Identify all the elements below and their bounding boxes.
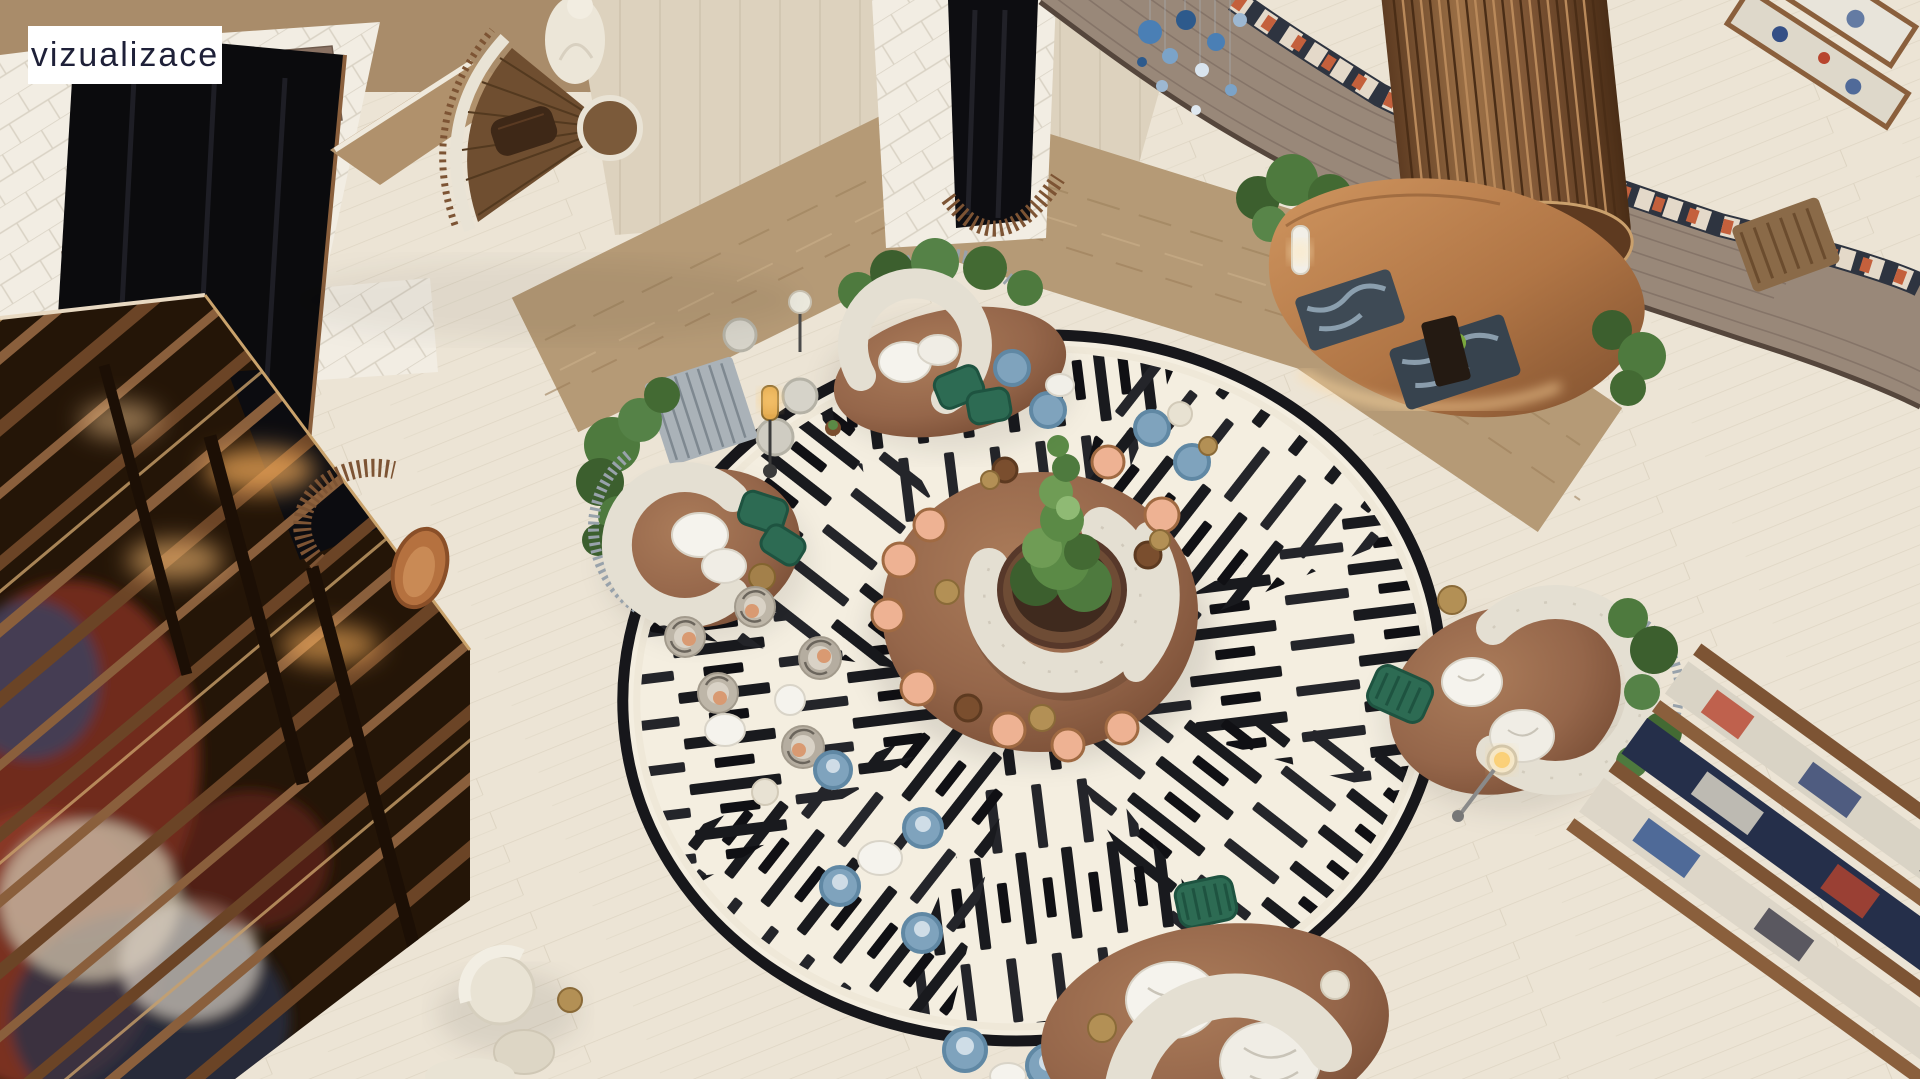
marble-table xyxy=(702,549,746,583)
marble-table xyxy=(918,335,958,365)
elevator-shaft-center xyxy=(872,0,1058,248)
statue xyxy=(545,0,605,84)
ambient-shadow xyxy=(280,260,800,340)
marble-table xyxy=(1442,658,1502,706)
cream-pouf xyxy=(1321,971,1349,999)
visualization-caption: vizualizace xyxy=(28,26,222,84)
marble-table xyxy=(775,685,805,715)
gold-table xyxy=(558,988,582,1012)
visualization-canvas: vizualizace xyxy=(0,0,1920,1079)
gold-table xyxy=(1088,1014,1116,1042)
caption-text: vizualizace xyxy=(31,36,219,75)
gold-table xyxy=(749,564,775,590)
marble-table xyxy=(705,714,745,746)
cream-pouf xyxy=(752,779,778,805)
gold-table xyxy=(1438,586,1466,614)
lobby-render xyxy=(0,0,1920,1079)
marble-table xyxy=(858,841,902,875)
desk-lamp xyxy=(1288,226,1312,274)
